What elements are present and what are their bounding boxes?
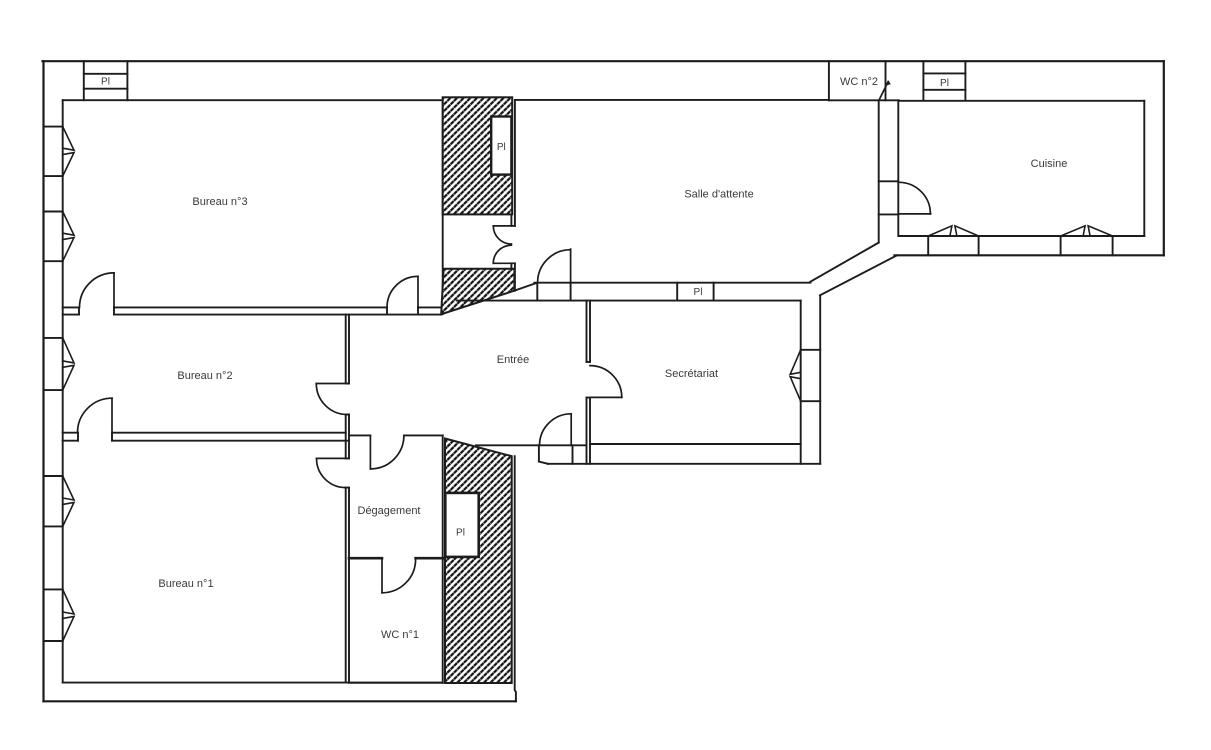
svg-text:WC n°1: WC n°1 [381,629,419,641]
svg-text:Cuisine: Cuisine [1031,158,1068,170]
svg-text:Bureau n°2: Bureau n°2 [177,370,232,382]
svg-text:Entrée: Entrée [497,354,529,366]
svg-text:Pl: Pl [940,78,949,89]
svg-text:Pl: Pl [694,287,703,298]
svg-text:Secrétariat: Secrétariat [665,368,718,380]
svg-text:Pl: Pl [497,142,506,153]
svg-text:Bureau n°3: Bureau n°3 [192,196,247,208]
svg-text:Dégagement: Dégagement [358,505,421,517]
svg-text:Pl: Pl [101,77,110,88]
svg-text:Salle d'attente: Salle d'attente [684,189,753,201]
svg-text:WC n°2: WC n°2 [840,76,878,88]
svg-text:Pl: Pl [456,528,465,539]
svg-text:Bureau n°1: Bureau n°1 [158,578,213,590]
